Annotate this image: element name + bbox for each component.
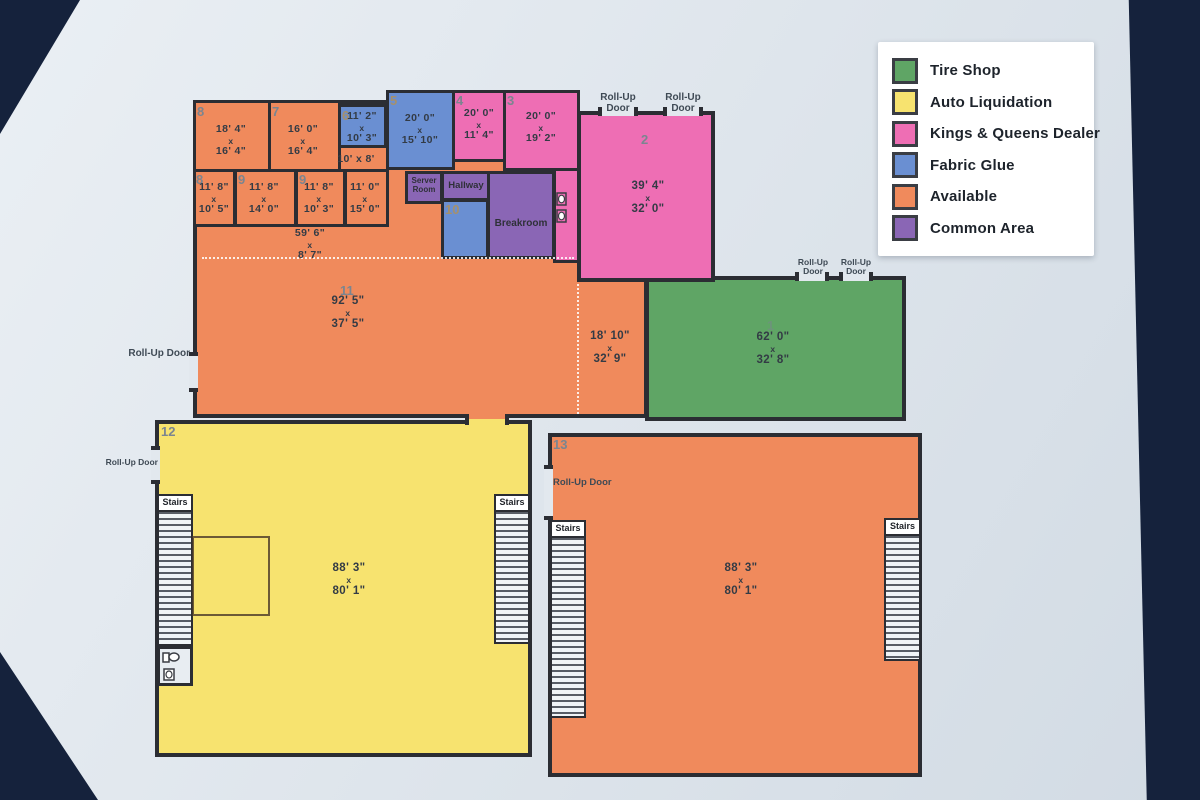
stairs-room12-left: Stairs (157, 494, 193, 646)
room-8a-dimensions: 18' 4"x16' 4" (216, 123, 246, 159)
restroom (157, 646, 193, 686)
breakroom-label: Breakroom (489, 218, 553, 229)
legend: Tire Shop Auto Liquidation Kings & Queen… (878, 42, 1094, 256)
stairs-label: Stairs (884, 518, 921, 536)
room-1-dimensions: 62' 0"x32' 8" (757, 330, 790, 368)
room-12-dimensions: 88' 3"x80' 1" (333, 561, 366, 599)
legend-item-available: Available (892, 181, 1080, 213)
room-13-number: 13 (553, 438, 567, 451)
server-room-label: Server Room (406, 176, 442, 194)
legend-item-tire-shop: Tire Shop (892, 55, 1080, 87)
stairs-room13-right: Stairs (884, 518, 921, 661)
legend-label: Common Area (930, 220, 1034, 237)
room-8a-number: 8 (197, 105, 204, 118)
rollup-door-gap (544, 465, 553, 520)
room-7-dimensions: 16' 0"x16' 4" (288, 123, 318, 159)
room-10-number: 10 (445, 203, 459, 216)
legend-label: Available (930, 188, 997, 205)
legend-item-kings-queens: Kings & Queens Dealer (892, 118, 1080, 150)
legend-swatch-fabric-glue (892, 152, 918, 178)
decor-band-right (1125, 0, 1200, 800)
legend-swatch-common-area (892, 215, 918, 241)
room-9a-number: 9 (238, 173, 245, 186)
stairs-room12-right: Stairs (494, 494, 530, 644)
decor-corner-top-left (0, 0, 80, 134)
breakroom[interactable] (487, 171, 555, 259)
room-5-dimensions: 20' 0"x15' 10" (402, 112, 439, 148)
room-12-partition (192, 536, 270, 616)
room-9a-dimensions: 11' 8"x14' 0" (249, 181, 279, 217)
legend-label: Tire Shop (930, 62, 1001, 79)
door-opening (465, 414, 509, 425)
decor-corner-bottom-left (0, 652, 98, 800)
room-18-strip-dimensions: 18' 10"x32' 9" (590, 329, 630, 367)
legend-item-common-area: Common Area (892, 213, 1080, 245)
room-4-number: 4 (456, 94, 463, 107)
legend-label: Fabric Glue (930, 157, 1015, 174)
room-13-dimensions: 88' 3"x80' 1" (725, 561, 758, 599)
legend-swatch-available (892, 184, 918, 210)
legend-label: Auto Liquidation (930, 94, 1052, 111)
stairs-label: Stairs (494, 494, 530, 512)
room-9b-dimensions: 11' 8"x10' 3" (304, 181, 334, 217)
rollup-door-gap (189, 352, 198, 392)
legend-item-auto-liquidation: Auto Liquidation (892, 87, 1080, 119)
legend-swatch-tire-shop (892, 58, 918, 84)
rollup-door-label: Roll-UpDoor (834, 258, 878, 277)
stairs-room13-left: Stairs (550, 520, 586, 718)
stairs-label: Stairs (550, 520, 586, 538)
dotted-boundary-strip (577, 284, 579, 414)
rollup-door-label: Roll-UpDoor (653, 92, 713, 114)
small-corridor-dimensions: 10' x 8' (337, 153, 374, 167)
hallway-label: Hallway (443, 180, 489, 191)
breakroom-restroom-fixtures (556, 192, 578, 228)
room-12-number: 12 (161, 425, 175, 438)
dotted-boundary-corridor (202, 257, 574, 259)
rollup-door-label: Roll-UpDoor (588, 92, 648, 114)
legend-label: Kings & Queens Dealer (930, 125, 1100, 142)
room-6-dimensions: 11' 2"x10' 3" (347, 110, 377, 146)
room-8b-dimensions: 11' 8"x10' 5" (199, 181, 229, 217)
floor-plan-canvas: Stairs Stairs Stairs Stairs Roll-UpDoor … (0, 0, 1200, 800)
room-7-number: 7 (272, 105, 279, 118)
room-2-dimensions: 39' 4"x32' 0" (632, 179, 665, 217)
room-3-dimensions: 20' 0"x19' 2" (526, 110, 556, 146)
rollup-door-label: Roll-Up Door (114, 348, 190, 359)
restroom-fixtures (161, 650, 191, 684)
stairs-label: Stairs (157, 494, 193, 512)
rollup-door-label: Roll-UpDoor (791, 258, 835, 277)
corridor-dimensions: 59' 6"x8' 7" (295, 227, 325, 263)
rollup-door-label: Roll-Up Door (553, 478, 623, 488)
room-3-number: 3 (507, 94, 514, 107)
legend-swatch-auto-liquidation (892, 89, 918, 115)
room-5-number: 5 (390, 94, 397, 107)
legend-item-fabric-glue: Fabric Glue (892, 150, 1080, 182)
room-4-dimensions: 20' 0"x11' 4" (464, 107, 494, 143)
room-11x15-dimensions: 11' 0"x15' 0" (350, 181, 380, 217)
rollup-door-label: Roll-Up Door (96, 458, 158, 467)
room-11-dimensions: 92' 5"x37' 5" (332, 294, 365, 332)
room-2-number: 2 (641, 133, 648, 146)
legend-swatch-kings-queens (892, 121, 918, 147)
